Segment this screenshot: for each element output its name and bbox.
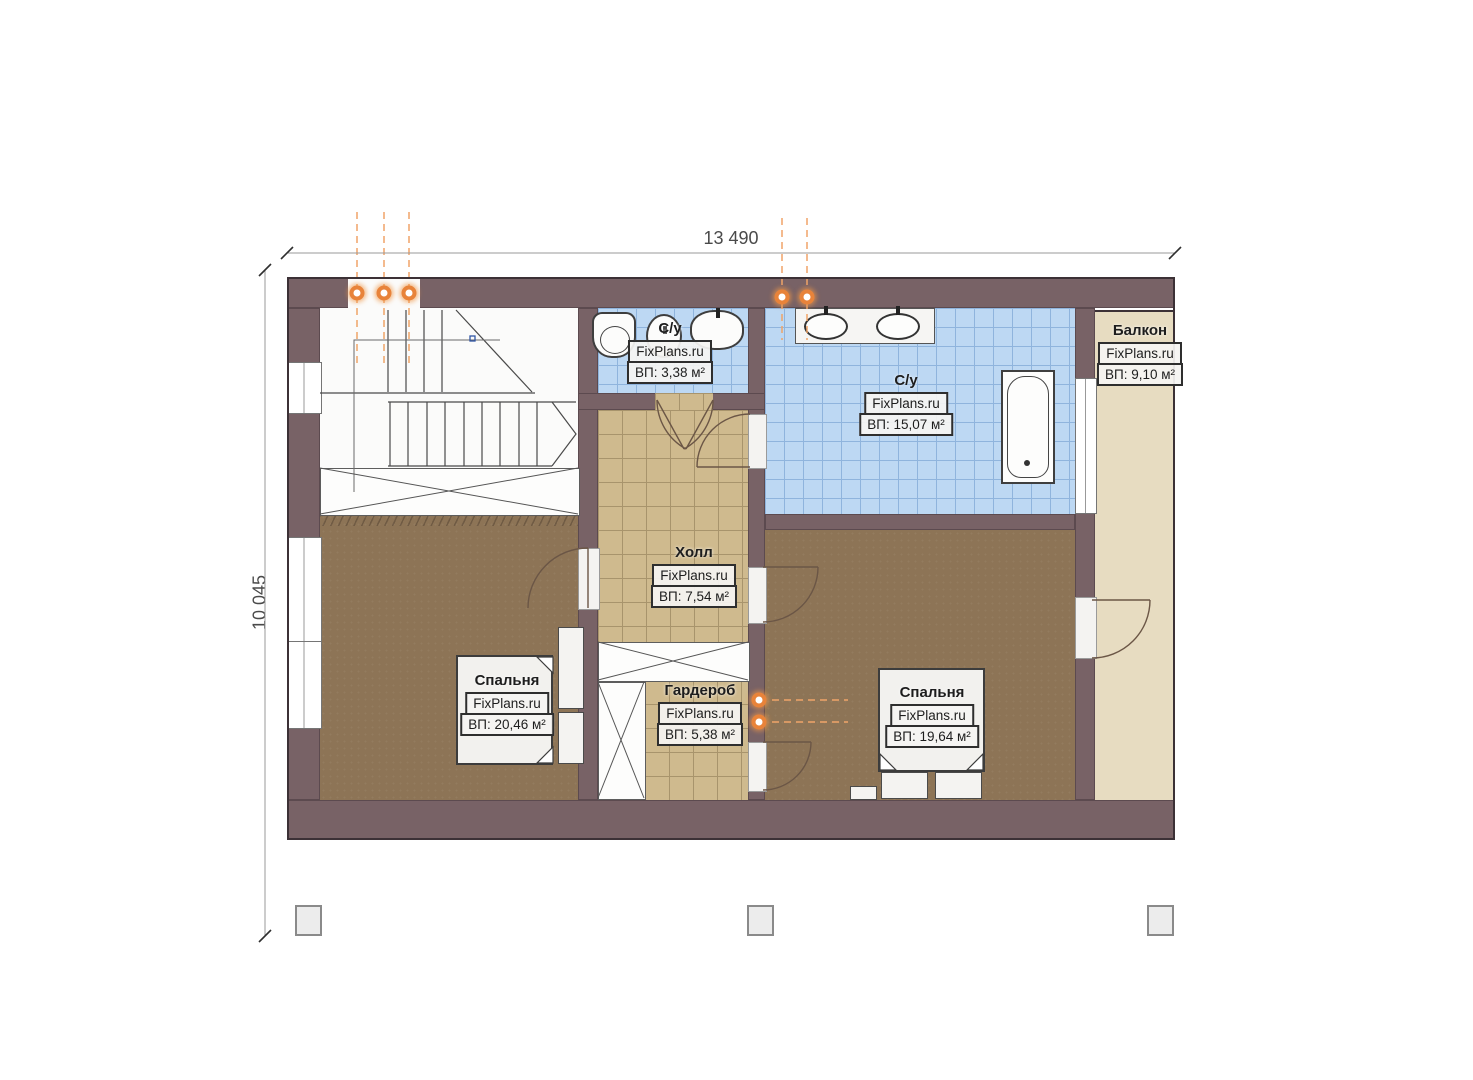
room-area: ВП: 9,10 м² <box>1097 363 1183 386</box>
room-area: ВП: 7,54 м² <box>651 585 737 608</box>
room-name: С/у <box>859 372 953 389</box>
room-label-bathroom-small: С/у FixPlans.ru ВП: 3,38 м² <box>627 320 713 384</box>
room-name: Гардероб <box>657 682 743 699</box>
room-name: Балкон <box>1097 322 1183 339</box>
room-brand-watermark: FixPlans.ru <box>658 702 742 725</box>
ceiling-lamp-icon <box>402 286 417 301</box>
room-brand-watermark: FixPlans.ru <box>890 704 974 727</box>
room-label-bedroom-left: Спальня FixPlans.ru ВП: 20,46 м² <box>460 672 554 736</box>
bench-right <box>850 786 877 800</box>
nightstand-right-2 <box>935 772 982 799</box>
room-name: Спальня <box>885 684 979 701</box>
ceiling-lamp-icon <box>752 693 767 708</box>
doorway-wardrobe <box>748 742 767 792</box>
bathtub <box>1001 370 1055 484</box>
ceiling-lamp-icon <box>775 290 790 305</box>
room-label-bathroom-large: С/у FixPlans.ru ВП: 15,07 м² <box>859 372 953 436</box>
doorway-balcony <box>1075 597 1097 659</box>
pillar <box>295 905 322 936</box>
ceiling-lamp-icon <box>752 715 767 730</box>
window-bedroom-left-1 <box>287 537 322 643</box>
ceiling-lamp-icon <box>377 286 392 301</box>
room-brand-watermark: FixPlans.ru <box>465 692 549 715</box>
window-bedroom-left-2 <box>287 641 322 729</box>
doorway-small-bath <box>655 393 713 410</box>
room-label-bedroom-right: Спальня FixPlans.ru ВП: 19,64 м² <box>885 684 979 748</box>
room-area: ВП: 5,38 м² <box>657 723 743 746</box>
vanity-faucet-1 <box>824 306 828 315</box>
room-name: Холл <box>651 544 737 561</box>
room-area: ВП: 3,38 м² <box>627 361 713 384</box>
doorway-bedroom-left <box>578 548 600 610</box>
dimension-width-label: 13 490 <box>651 228 811 249</box>
ceiling-lamp-icon <box>800 290 815 305</box>
room-label-hall: Холл FixPlans.ru ВП: 7,54 м² <box>651 544 737 608</box>
floor-plan-canvas: С/у FixPlans.ru ВП: 3,38 м² С/у FixPlans… <box>0 0 1473 1080</box>
sink-faucet <box>716 308 720 318</box>
room-area: ВП: 19,64 м² <box>885 725 979 748</box>
vanity-sink-2 <box>876 313 920 340</box>
nightstand-left-1 <box>558 627 584 709</box>
pillar <box>1147 905 1174 936</box>
room-brand-watermark: FixPlans.ru <box>652 564 736 587</box>
vanity-sink-1 <box>804 313 848 340</box>
vanity-faucet-2 <box>896 306 900 315</box>
wall-under-large-bath <box>765 514 1075 530</box>
room-area: ВП: 15,07 м² <box>859 413 953 436</box>
doorway-large-bath <box>748 414 767 469</box>
void-box-hall-wardrobe <box>598 642 750 682</box>
void-box-under-stairs <box>320 468 580 516</box>
wall-bottom <box>287 800 1175 840</box>
room-label-balcony: Балкон FixPlans.ru ВП: 9,10 м² <box>1097 322 1183 386</box>
room-name: С/у <box>627 320 713 337</box>
staircase-area-floor <box>320 308 578 470</box>
room-brand-watermark: FixPlans.ru <box>628 340 712 363</box>
nightstand-left-2 <box>558 712 584 764</box>
room-brand-watermark: FixPlans.ru <box>1098 342 1182 365</box>
ceiling-lamp-icon <box>350 286 365 301</box>
window-bathroom-large <box>1075 378 1097 514</box>
room-label-wardrobe: Гардероб FixPlans.ru ВП: 5,38 м² <box>657 682 743 746</box>
toilet-bowl <box>600 326 630 354</box>
wardrobe-cabinet <box>598 682 646 800</box>
doorway-bedroom-right <box>748 567 767 624</box>
room-brand-watermark: FixPlans.ru <box>864 392 948 415</box>
dimension-height-label: 10 045 <box>250 543 271 663</box>
room-area: ВП: 20,46 м² <box>460 713 554 736</box>
bathtub-drain <box>1024 460 1030 466</box>
pillar <box>747 905 774 936</box>
room-name: Спальня <box>460 672 554 689</box>
nightstand-right-1 <box>881 772 928 799</box>
window-stair <box>287 362 322 414</box>
wall-top <box>287 277 1175 308</box>
